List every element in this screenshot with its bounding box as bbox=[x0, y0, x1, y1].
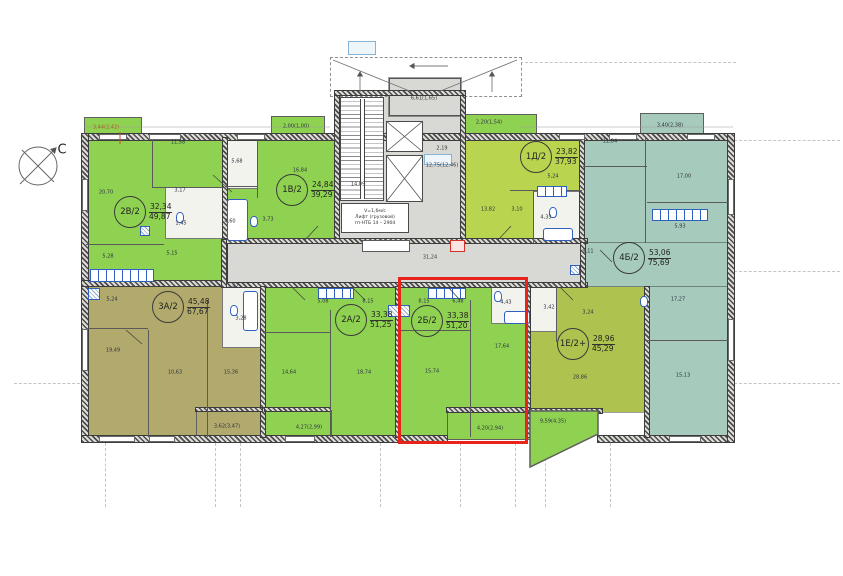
balcony-1e-2 bbox=[530, 411, 598, 467]
corridor-cabinet-box bbox=[362, 240, 410, 252]
balcony-2v-2 bbox=[84, 117, 142, 140]
apartment-region-1v-2[interactable] bbox=[225, 138, 337, 243]
elevator-shaft-2 bbox=[386, 155, 423, 202]
grid-line bbox=[610, 443, 611, 507]
grid-line bbox=[734, 383, 840, 384]
stair-divider bbox=[360, 99, 365, 199]
revision-callout-top bbox=[348, 41, 376, 55]
window-opening bbox=[670, 437, 700, 441]
grid-line bbox=[520, 62, 736, 63]
fire-hydrant-box bbox=[450, 240, 465, 252]
apartment-region-1d-2[interactable] bbox=[465, 138, 582, 243]
balcony-1v-2 bbox=[271, 116, 325, 140]
apartment-region-4b-2-bottom[interactable] bbox=[647, 287, 730, 437]
balcony-4b-2 bbox=[640, 113, 704, 140]
compass-north-letter: С bbox=[57, 144, 66, 157]
grid-line bbox=[105, 443, 106, 507]
elevator-note-box: V=1,6м/с Лифт (грузовой) гп-НТБ 14 – 290… bbox=[341, 203, 409, 233]
window-opening bbox=[150, 437, 174, 441]
apartment-region-4b-2-top[interactable] bbox=[583, 138, 730, 243]
grid-line bbox=[14, 383, 80, 384]
grid-line bbox=[545, 443, 546, 507]
grid-line bbox=[515, 443, 516, 507]
grid-line bbox=[734, 140, 840, 141]
balcony-3a-2 bbox=[196, 410, 264, 438]
window-opening bbox=[100, 437, 134, 441]
elevator-shaft-1 bbox=[386, 121, 423, 152]
balcony-1d-2 bbox=[465, 114, 537, 140]
grid-line bbox=[215, 443, 216, 507]
grid-line bbox=[380, 443, 381, 507]
elevator-note-line3: гп-НТБ 14 – 2904 bbox=[355, 221, 396, 227]
floor-plan: V=1,6м/с Лифт (грузовой) гп-НТБ 14 – 290… bbox=[0, 0, 843, 576]
grid-line bbox=[460, 443, 461, 507]
grid-line bbox=[734, 271, 840, 272]
revision-callout-core bbox=[424, 154, 452, 165]
compass-icon bbox=[19, 147, 57, 185]
balcony-2a-2 bbox=[265, 410, 332, 438]
grid-line bbox=[240, 443, 241, 507]
vestibule-region bbox=[389, 78, 461, 116]
apartment-region-2v-2[interactable] bbox=[86, 138, 225, 284]
balcony-area-label: 9,59(4,35) bbox=[540, 420, 566, 425]
apartment-region-4b-2-mid[interactable] bbox=[583, 243, 730, 287]
apartment-region-1e-2[interactable] bbox=[528, 287, 647, 412]
selected-apartment-highlight[interactable] bbox=[398, 277, 528, 444]
